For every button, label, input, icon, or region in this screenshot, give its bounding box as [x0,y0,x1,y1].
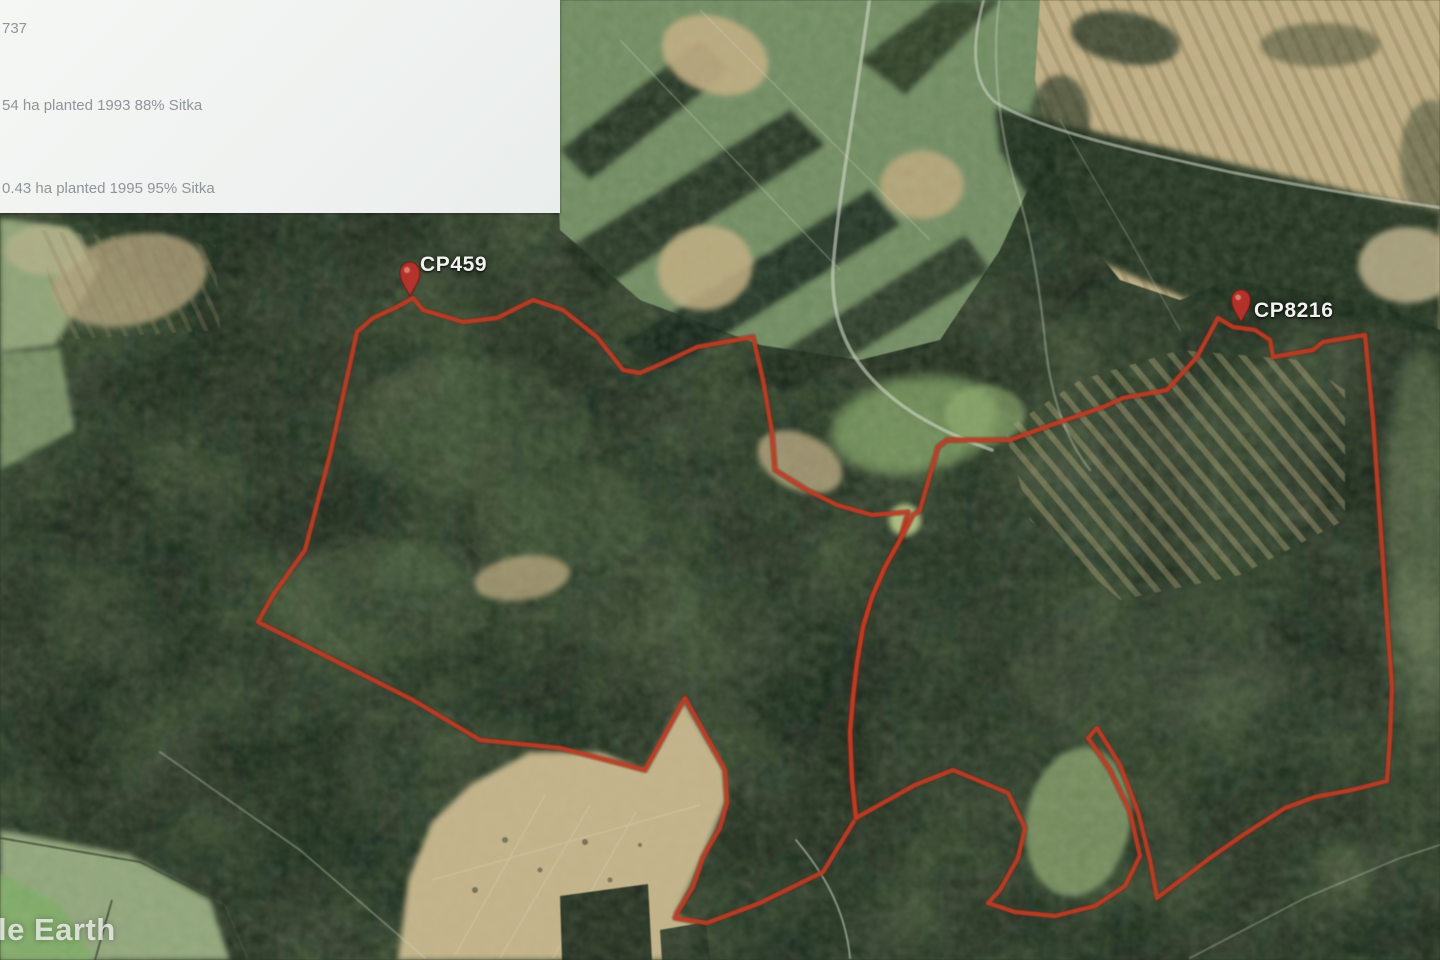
google-earth-window: CP459 CP8216 737 54 ha planted 1993 88% … [0,0,1440,960]
placemark-label-cp459[interactable]: CP459 [420,253,487,277]
info-panel: 737 54 ha planted 1993 88% Sitka 0.43 ha… [0,0,560,213]
info-panel-line-2: 54 ha planted 1993 88% Sitka [2,97,202,114]
info-panel-line-1: 737 [2,20,27,37]
info-panel-line-3: 0.43 ha planted 1995 95% Sitka [2,180,215,197]
placemark-label-cp8216[interactable]: CP8216 [1254,299,1334,323]
google-earth-watermark: le Earth [0,912,116,948]
